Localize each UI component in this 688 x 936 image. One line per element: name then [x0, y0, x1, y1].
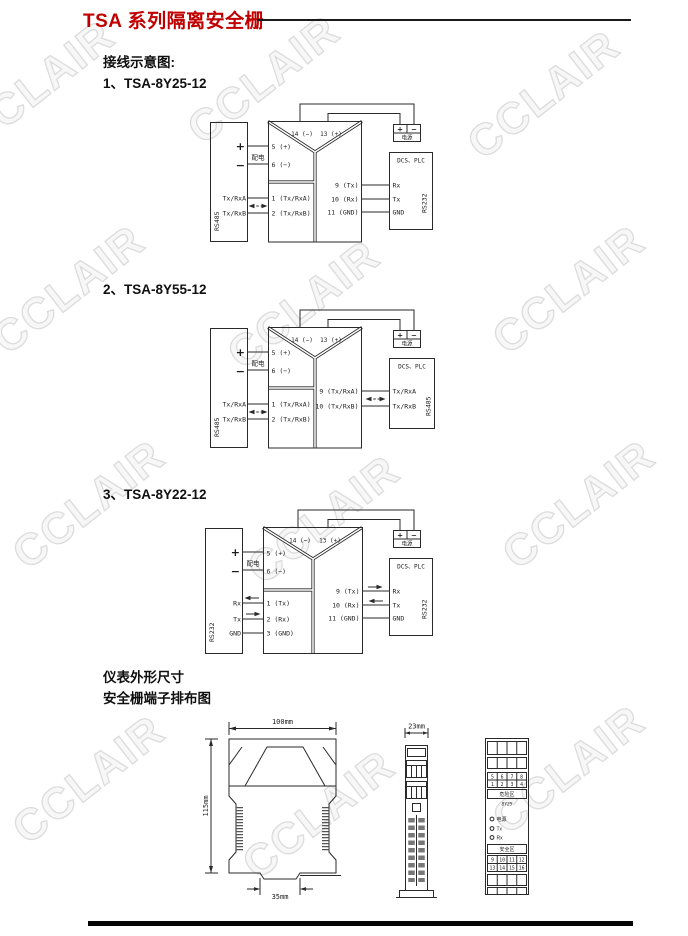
dcs-bus-label: RS232	[421, 193, 429, 213]
terminal-10: 10 (Rx)	[332, 601, 359, 609]
dcs-bus-label: RS485	[425, 396, 433, 416]
terminal-number: 1	[491, 782, 494, 788]
d1-dcs-box: DCS、PLC Rx Tx GND RS232	[390, 153, 433, 230]
model-label: 8Y25	[502, 802, 513, 808]
wiring-diagram-2: + − 电源 RS485 + − Tx/RxA Tx/RxB 配电	[205, 306, 440, 458]
face-bottom-terminals	[488, 875, 527, 895]
height-dimension: 115mm	[202, 739, 218, 873]
d1-barrier-module: 14 (−) 13 (+) 5 (+) 6 (−) 1 (Tx/RxA) 2 (…	[268, 122, 362, 243]
terminal-number: 7	[510, 775, 513, 781]
led-rx-label: Rx	[497, 835, 504, 841]
d3-dcs-box: DCS、PLC Rx Tx GND RS232	[390, 559, 433, 636]
terminal-number: 11	[509, 858, 515, 864]
side-body	[396, 746, 437, 898]
terminal-5: 5 (+)	[267, 550, 287, 558]
title-rule	[257, 19, 631, 21]
terminal-2: 2 (Rx)	[267, 616, 290, 624]
minus-label: −	[231, 565, 240, 578]
supply-label: 电源	[401, 340, 413, 348]
dcs-title: DCS、PLC	[398, 364, 426, 371]
plus-label: +	[236, 140, 245, 153]
dcs-tx: Tx	[393, 195, 401, 203]
footer-rule	[88, 921, 633, 926]
dcs-tx: Tx	[393, 601, 401, 609]
plus-label: +	[231, 546, 240, 559]
terminal-number: 15	[509, 866, 515, 872]
dcs-title: DCS、PLC	[397, 564, 425, 571]
face-safe-numbers: 9 10 11 12 13 14 15 16	[488, 856, 527, 872]
face-hazard-numbers: 5 6 7 8 1 2 3 4	[488, 773, 527, 789]
feed-label: 配电	[252, 153, 266, 162]
terminal-number: 10	[499, 858, 505, 864]
terminal-11: 11 (GND)	[328, 614, 359, 622]
terminal-1: 1 (Tx/RxA)	[272, 195, 311, 203]
d2-dcs-box: DCS、PLC Tx/RxA Tx/RxB RS485	[390, 359, 435, 429]
wiring-heading: 接线示意图:	[103, 51, 175, 71]
d3-left-wires: 配电	[243, 552, 264, 633]
rail-dim-label: 35mm	[272, 893, 289, 901]
terminal-14: 14 (−)	[289, 538, 311, 545]
terminal-number: 12	[519, 858, 525, 864]
page-title: TSA 系列隔离安全栅	[83, 6, 264, 33]
terminal-number: 4	[520, 782, 523, 788]
bus-label: RS485	[213, 211, 221, 231]
terminal-2: 2 (Tx/RxB)	[272, 210, 311, 218]
terminal-14: 14 (−)	[291, 131, 313, 138]
wiring-diagram-3: + − 电源 RS232 + − Rx Tx GND 配电	[200, 506, 440, 662]
terminal-13: 13 (+)	[319, 538, 341, 545]
dcs-rx: Rx	[393, 587, 401, 595]
txrxb-label: Tx/RxB	[223, 415, 247, 423]
supply-label: 电源	[401, 134, 413, 142]
dcs-title: DCS、PLC	[397, 158, 425, 165]
led-tx-label: Tx	[497, 826, 503, 832]
bus-label: RS485	[213, 417, 221, 437]
txrxb-label: Tx/RxB	[223, 209, 247, 217]
module-outline	[229, 739, 341, 879]
minus-label: −	[236, 159, 245, 172]
d1-rs485-box: RS485 + − Tx/RxA Tx/RxB	[211, 123, 248, 242]
supply-plus: +	[397, 532, 403, 540]
terminal-1: 1 (Tx)	[267, 600, 290, 608]
supply-plus: +	[397, 126, 403, 134]
terminal-13: 13 (+)	[320, 337, 342, 344]
terminal-heading: 安全栅端子排布图	[103, 687, 211, 707]
dcs-rx: Rx	[393, 181, 401, 189]
rx-label: Rx	[233, 599, 241, 607]
terminal-number: 13	[490, 866, 496, 872]
terminal-number: 3	[510, 782, 513, 788]
dcs-bus-label: RS232	[421, 599, 429, 619]
d1-left-wires: 配电	[248, 146, 269, 213]
face-hazard-band: 危险区 8Y25	[488, 790, 527, 808]
dcs-gnd: GND	[393, 208, 405, 216]
diagram1-heading: 1、TSA-8Y25-12	[103, 72, 207, 92]
rail-dimension: 35mm	[247, 878, 313, 901]
d3-right-wires	[363, 585, 390, 618]
terminal-9: 9 (Tx)	[335, 181, 358, 189]
terminal-number: 9	[491, 858, 494, 864]
tx-label: Tx	[233, 615, 241, 623]
diagram2-heading: 2、TSA-8Y55-12	[103, 278, 207, 298]
dcs-gnd: GND	[393, 614, 405, 622]
plus-label: +	[236, 346, 245, 359]
feed-label: 配电	[247, 559, 261, 568]
terminal-3: 3 (GND)	[267, 630, 294, 638]
terminal-11: 11 (GND)	[327, 208, 358, 216]
supply-plus: +	[397, 332, 403, 340]
supply-minus: −	[411, 332, 417, 340]
txrxa-label: Tx/RxA	[223, 194, 247, 202]
dcs-txrxb: Tx/RxB	[393, 402, 417, 410]
terminal-1: 1 (Tx/RxA)	[272, 401, 311, 409]
terminal-number: 6	[501, 775, 504, 781]
terminal-6: 6 (−)	[272, 161, 292, 169]
hazard-area-label: 危险区	[499, 791, 514, 798]
supply-label: 电源	[401, 540, 413, 548]
d3-power-supply-box: + − 电源	[394, 531, 421, 548]
terminal-number: 8	[520, 775, 523, 781]
face-safe-band: 安全区	[488, 845, 527, 854]
d1-power-supply-box: + − 电源	[394, 125, 421, 142]
terminal-9: 9 (Tx/RxA)	[319, 387, 358, 395]
minus-label: −	[236, 365, 245, 378]
terminal-6: 6 (−)	[272, 367, 292, 375]
face-top-terminals	[488, 742, 527, 769]
d1-right-wires	[362, 185, 390, 212]
face-leds: 电源 Tx Rx	[490, 816, 506, 842]
depth-dimension: 23mm	[405, 723, 428, 739]
feed-label: 配电	[252, 359, 266, 368]
width-dim-label: 100mm	[272, 718, 293, 726]
outline-heading: 仪表外形尺寸	[103, 666, 184, 686]
terminal-number: 16	[519, 866, 525, 872]
width-dimension: 100mm	[229, 718, 336, 735]
supply-minus: −	[411, 532, 417, 540]
terminal-9: 9 (Tx)	[336, 587, 359, 595]
terminal-10: 10 (Rx)	[331, 195, 358, 203]
front-view-drawing: 100mm 115mm	[195, 716, 370, 914]
terminal-10: 10 (Tx/RxB)	[315, 402, 358, 410]
terminal-13: 13 (+)	[320, 131, 342, 138]
wiring-diagram-1: + − 电源 RS485 + − Tx/RxA Tx/RxB 配电	[205, 100, 440, 252]
txrxa-label: Tx/RxA	[223, 400, 247, 408]
gnd-label: GND	[229, 629, 241, 637]
led-power-label: 电源	[497, 816, 507, 823]
d2-power-supply-box: + − 电源	[394, 331, 421, 348]
terminal-layout-drawing: 5 6 7 8 1 2 3 4 危险区 8Y25 电源 Tx Rx	[478, 732, 548, 904]
d2-barrier-module: 14 (−) 13 (+) 5 (+) 6 (−) 1 (Tx/RxA) 2 (…	[268, 328, 362, 449]
terminal-number: 14	[499, 866, 505, 872]
d2-right-wires	[362, 391, 390, 406]
side-view-drawing: 23mm	[385, 720, 450, 912]
dcs-txrxa: Tx/RxA	[393, 387, 417, 395]
d2-left-wires: 配电	[248, 352, 269, 419]
terminal-6: 6 (−)	[267, 568, 287, 576]
terminal-2: 2 (Tx/RxB)	[272, 416, 311, 424]
height-dim-label: 115mm	[202, 795, 210, 816]
diagram3-heading: 3、TSA-8Y22-12	[103, 483, 207, 503]
terminal-5: 5 (+)	[272, 349, 292, 357]
bus-label: RS232	[208, 622, 216, 642]
terminal-number: 2	[501, 782, 504, 788]
safe-area-label: 安全区	[499, 846, 514, 853]
document-page: CCLAIR CCLAIR CCLAIR CCLAIR CCLAIR CCLAI…	[0, 0, 688, 936]
d3-barrier-module: 14 (−) 13 (+) 5 (+) 6 (−) 1 (Tx) 2 (Rx) …	[263, 528, 363, 654]
terminal-14: 14 (−)	[291, 337, 313, 344]
d3-rs232-box: RS232 + − Rx Tx GND	[206, 529, 243, 654]
terminal-number: 5	[491, 775, 494, 781]
supply-minus: −	[411, 126, 417, 134]
depth-dim-label: 23mm	[408, 723, 425, 731]
d2-rs485-box: RS485 + − Tx/RxA Tx/RxB	[211, 329, 248, 448]
terminal-5: 5 (+)	[272, 143, 292, 151]
